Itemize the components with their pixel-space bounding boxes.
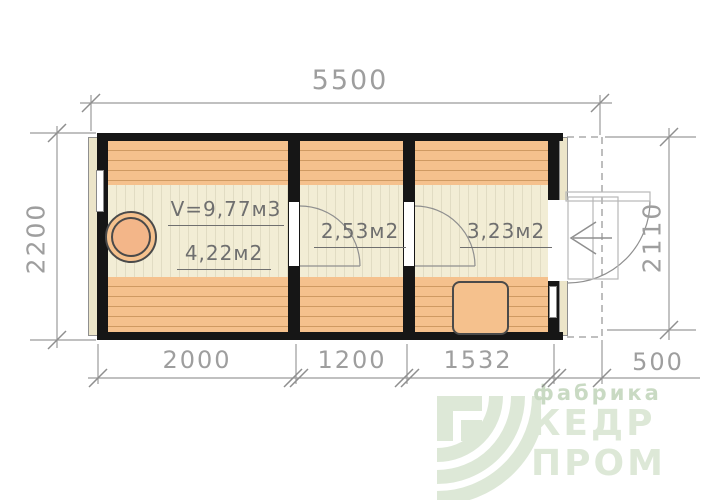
dim-label-right: 2110 [638,178,667,298]
room2-area-label: 2,53м2 [314,219,406,248]
room3-area-label: 3,23м2 [460,219,552,248]
floor-plan-drawing: фабрика КЕДР ПРОМ [0,0,711,502]
dim-label-1532: 1532 [418,346,538,374]
room1-area-label: 4,22м2 [177,241,271,270]
dim-label-left: 2200 [22,179,51,299]
entry-arrow-icon [571,222,612,254]
dim-label-500: 500 [610,348,706,376]
dim-label-1200: 1200 [292,346,412,374]
dim-label-top: 5500 [295,65,405,96]
room1-volume-label: V=9,77м3 [168,197,284,226]
dim-label-2000: 2000 [137,346,257,374]
